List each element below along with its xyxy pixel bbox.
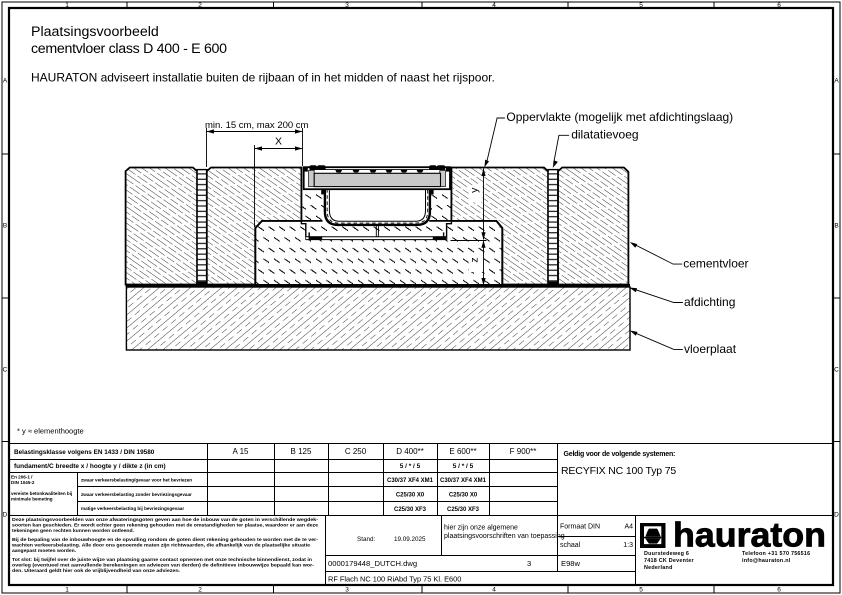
svg-text:A: A <box>3 78 8 85</box>
svg-text:7418 CK Deventer: 7418 CK Deventer <box>644 558 694 564</box>
svg-text:den. Uiteraard geldt hier ook: den. Uiteraard geldt hier ook de vrijbli… <box>12 568 180 573</box>
svg-text:* y ≈ elementhoogte: * y ≈ elementhoogte <box>17 427 84 436</box>
svg-text:Telefoon +31 570 756516: Telefoon +31 570 756516 <box>742 551 810 557</box>
svg-text:B 125: B 125 <box>291 447 312 456</box>
svg-text:5 / * / 5: 5 / * / 5 <box>453 463 474 470</box>
svg-text:Formaat DIN: Formaat DIN <box>560 524 600 531</box>
svg-text:Duurstedeweg 6: Duurstedeweg 6 <box>644 551 689 557</box>
svg-text:C30/37 XF4 XM1: C30/37 XF4 XM1 <box>387 478 434 484</box>
svg-text:C25/30 X0: C25/30 X0 <box>396 493 425 499</box>
svg-text:wachten verkeersbelasting. All: wachten verkeersbelasting. Alle door ons… <box>11 542 311 547</box>
svg-text:3: 3 <box>345 587 349 594</box>
svg-text:tekeningen geen rechten kunnen: tekeningen geen rechten kunnen worden on… <box>12 528 134 533</box>
svg-text:5: 5 <box>639 2 643 9</box>
svg-text:soorten kan geschieden. Er wor: soorten kan geschieden. Er wordt echter … <box>12 522 319 527</box>
svg-text:RECYFIX NC 100 Typ 75: RECYFIX NC 100 Typ 75 <box>561 465 676 477</box>
svg-text:D: D <box>3 512 8 519</box>
svg-text:A: A <box>834 78 839 85</box>
svg-text:1: 1 <box>65 587 69 594</box>
svg-text:0000179448_DUTCH.dwg: 0000179448_DUTCH.dwg <box>328 559 417 568</box>
svg-text:A4: A4 <box>624 524 633 531</box>
svg-text:19.09.2025: 19.09.2025 <box>394 536 426 543</box>
svg-text:2: 2 <box>198 587 202 594</box>
svg-text:dilatatievoeg: dilatatievoeg <box>571 128 638 142</box>
svg-text:2: 2 <box>198 2 202 9</box>
svg-text:hauraton: hauraton <box>673 517 826 555</box>
svg-text:D 400**: D 400** <box>396 447 424 456</box>
svg-text:C25/30 XF3: C25/30 XF3 <box>394 507 427 513</box>
svg-text:Oppervlakte (mogelijk met afdi: Oppervlakte (mogelijk met afdichtingslaa… <box>506 110 733 124</box>
svg-text:Deze plaatsingsvoorbeelden van: Deze plaatsingsvoorbeelden van onze afwa… <box>12 517 319 522</box>
svg-text:Plaatsingsvoorbeeld: Plaatsingsvoorbeeld <box>31 24 159 40</box>
svg-text:C 250: C 250 <box>345 447 367 456</box>
svg-text:Belastingsklasse volgens EN 1: Belastingsklasse volgens EN 1433 / DIN 1… <box>14 449 155 456</box>
svg-text:zwaar verkeersbelasting/gevaar: zwaar verkeersbelasting/gevaar voor het … <box>81 478 192 483</box>
svg-text:HAURATON adviseert installatie: HAURATON adviseert installatie buiten de… <box>31 71 495 85</box>
svg-text:En 206-1 /: En 206-1 / <box>11 475 33 480</box>
svg-text:B: B <box>834 223 838 230</box>
svg-text:minimale bemeting: minimale bemeting <box>11 497 53 502</box>
svg-text:overleg (eventueel met aanvull: overleg (eventueel met aanvullende berek… <box>12 562 315 567</box>
svg-text:Tot slot: bij twijfel over de: Tot slot: bij twijfel over de juiste wij… <box>12 557 312 562</box>
svg-text:3: 3 <box>345 2 349 9</box>
svg-text:cementvloer class D 400 - E 60: cementvloer class D 400 - E 600 <box>31 41 227 57</box>
svg-text:4: 4 <box>492 2 496 9</box>
svg-text:A 15: A 15 <box>232 447 249 456</box>
svg-text:cementvloer: cementvloer <box>683 257 748 271</box>
svg-text:C25/30 X0: C25/30 X0 <box>449 493 478 499</box>
svg-text:hier zijn onze algemene: hier zijn onze algemene <box>444 525 518 532</box>
svg-text:Bij de bepaling van de inbouwh: Bij de bepaling van de inbouwhoogte en d… <box>12 537 319 542</box>
svg-text:E 600**: E 600** <box>449 447 476 456</box>
svg-text:fundament/C breedte x / hoogt: fundament/C breedte x / hoogte y / dikte… <box>14 463 166 470</box>
svg-text:RF Flach NC 100 RiAbd Typ 75: RF Flach NC 100 RiAbd Typ 75 Kl. E600 <box>328 575 461 584</box>
svg-text:zwaar verkeersbelasting zonder: zwaar verkeersbelasting zonder bevriezin… <box>81 492 192 497</box>
svg-text:C: C <box>834 367 839 374</box>
svg-text:1: 1 <box>65 2 69 9</box>
svg-text:C: C <box>3 367 8 374</box>
svg-text:D: D <box>834 512 839 519</box>
svg-text:z: z <box>469 257 481 262</box>
svg-text:aangepast moeten worden.: aangepast moeten worden. <box>12 548 76 553</box>
svg-text:4: 4 <box>492 587 496 594</box>
svg-text:1:3: 1:3 <box>623 542 633 549</box>
svg-text:6: 6 <box>777 2 781 9</box>
svg-text:E98w: E98w <box>561 559 581 568</box>
svg-text:matige verkeersbelasting bij b: matige verkeersbelasting bij bevriezings… <box>81 506 184 511</box>
svg-text:afdichting: afdichting <box>684 295 735 309</box>
svg-text:vloerplaat: vloerplaat <box>684 342 737 356</box>
svg-text:info@hauraton.nl: info@hauraton.nl <box>742 558 791 564</box>
svg-text:5 / * / 5: 5 / * / 5 <box>400 463 421 470</box>
svg-text:C30/37 XF4 XM1: C30/37 XF4 XM1 <box>440 478 487 484</box>
svg-text:y: y <box>469 187 481 193</box>
svg-text:5: 5 <box>639 587 643 594</box>
svg-text:6: 6 <box>777 587 781 594</box>
svg-text:B: B <box>3 223 7 230</box>
svg-text:DIN 1045-2: DIN 1045-2 <box>11 480 35 485</box>
svg-text:schaal: schaal <box>560 542 581 549</box>
svg-text:F 900**: F 900** <box>510 447 537 456</box>
svg-text:Stand:: Stand: <box>357 536 375 543</box>
svg-text:plaatsingsvoorschriften van to: plaatsingsvoorschriften van toepassing <box>444 533 565 540</box>
svg-text:X: X <box>275 136 282 148</box>
svg-text:C25/30 XF3: C25/30 XF3 <box>447 507 480 513</box>
svg-text:Geldig voor de volgende system: Geldig voor de volgende systemen: <box>564 451 676 458</box>
svg-text:Nederland: Nederland <box>644 565 673 571</box>
svg-text:3: 3 <box>527 559 531 568</box>
svg-text:vereiste betonkwaliteiten bij: vereiste betonkwaliteiten bij <box>11 491 72 496</box>
svg-text:min. 15 cm, max 200 cm: min. 15 cm, max 200 cm <box>205 120 309 131</box>
